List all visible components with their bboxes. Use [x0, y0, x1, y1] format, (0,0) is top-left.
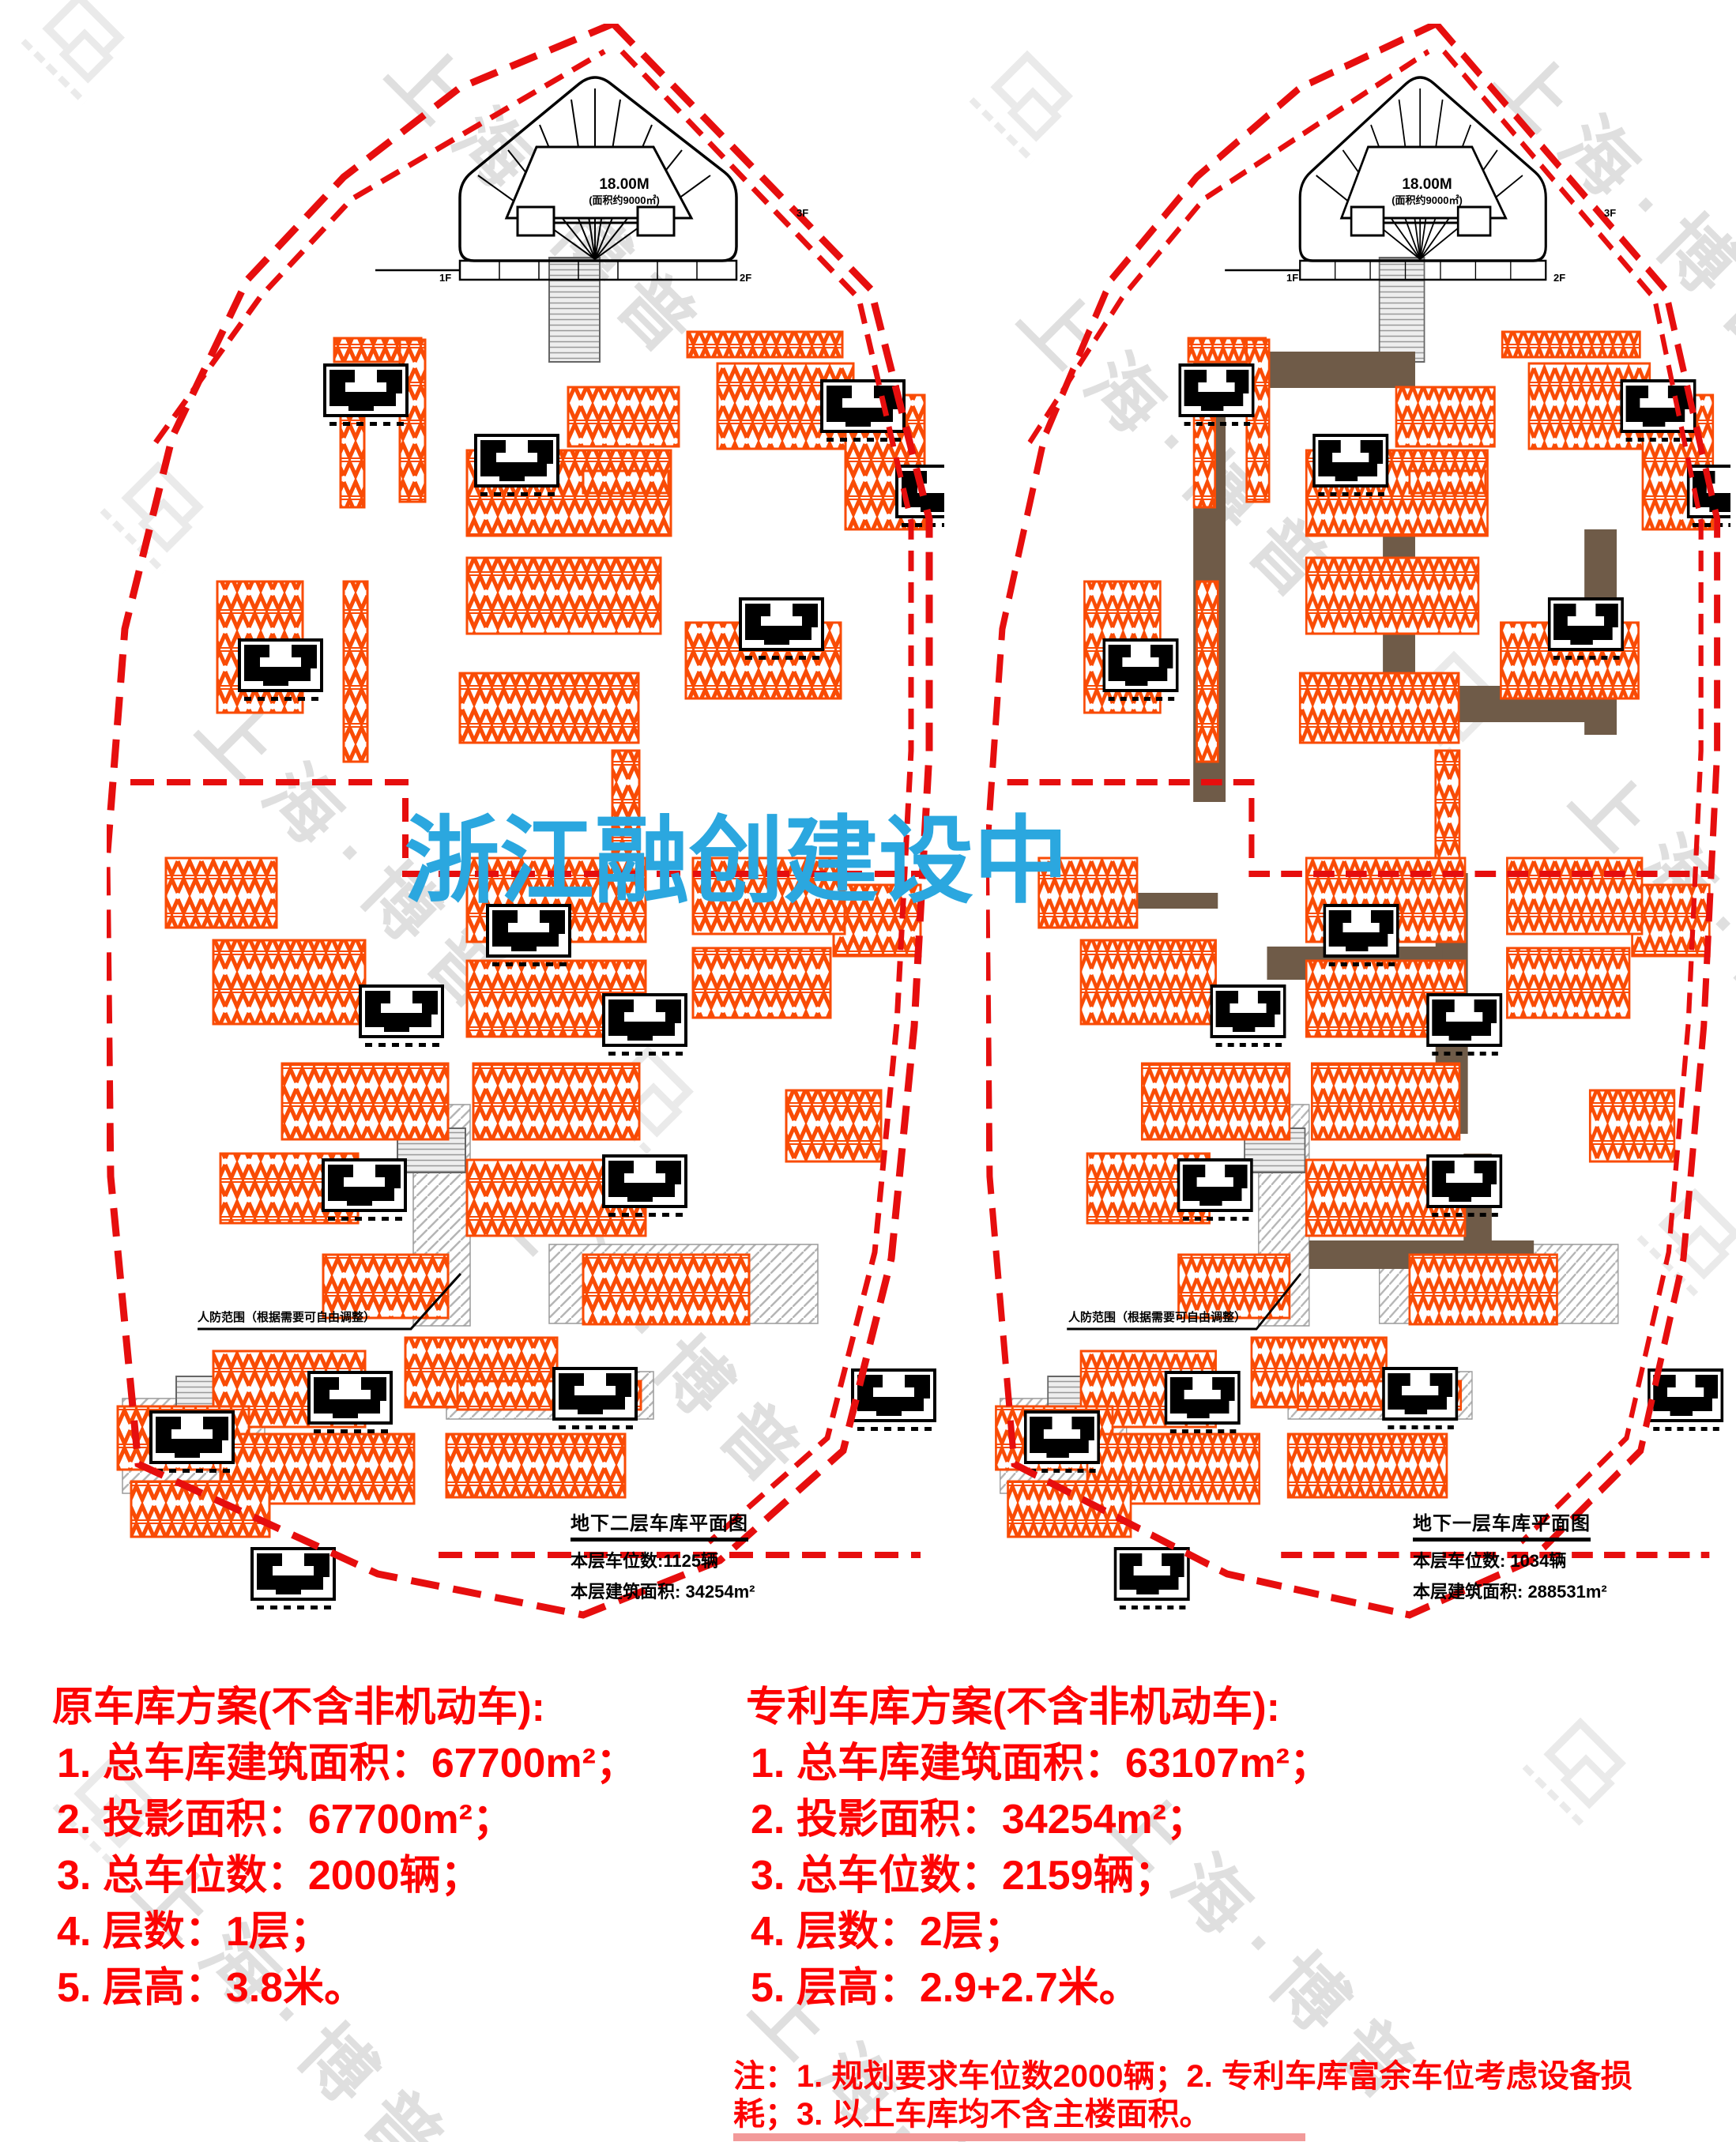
tower-label-right: 18.00M (面积约9000㎡) — [1356, 175, 1498, 207]
right-plan-drawing — [986, 24, 1730, 1663]
building-footprint — [1178, 1160, 1251, 1221]
floor-label-3f-right: 3F — [1604, 207, 1616, 219]
parking-block — [213, 940, 365, 1024]
overlay-title: 浙江融创建设中 — [405, 784, 1068, 921]
footnote-line2: 耗；3. 以上车库均不含主楼面积。 — [733, 2095, 1632, 2133]
parking-block — [1306, 558, 1478, 634]
building-footprint — [853, 1370, 935, 1431]
floor-label-2f-right: 2F — [1553, 272, 1565, 284]
parking-block — [568, 387, 679, 446]
parking-block — [1197, 582, 1218, 762]
building-footprint — [1649, 1370, 1722, 1431]
scheme-original: 原车库方案(不含非机动车): 1. 总车库建筑面积：67700m²； 2. 投影… — [52, 1680, 637, 2016]
building-footprint — [1116, 1549, 1188, 1609]
caption-title: 地下二层车库平面图 — [571, 1508, 748, 1542]
parking-block — [1632, 885, 1710, 956]
tower-area-label: (面积约9000㎡) — [553, 194, 695, 207]
caption-title: 地下一层车库平面图 — [1413, 1508, 1591, 1542]
parking-block — [1142, 1063, 1290, 1139]
parking-block — [1502, 332, 1640, 357]
building-footprint — [309, 1372, 391, 1433]
building-footprint — [554, 1368, 636, 1429]
building-footprint — [1428, 1156, 1501, 1217]
scheme-patent: 专利车库方案(不含非机动车): 1. 总车库建筑面积：63107m²； 2. 投… — [746, 1680, 1331, 2016]
civil-defense-annotation-right: 人防范围（根据需要可自由调整） — [1068, 1308, 1246, 1325]
building-footprint — [1211, 986, 1284, 1047]
building-footprint — [1180, 365, 1252, 426]
building-footprint — [325, 365, 407, 426]
parking-block — [1396, 387, 1494, 446]
scheme-item: 2. 投影面积：34254m²； — [746, 1792, 1331, 1848]
parking-block — [473, 1063, 639, 1139]
building-footprint — [1026, 1412, 1098, 1473]
footnote: 注：1. 规划要求车位数2000辆；2. 专利车库富余车位考虑设备损 耗；3. … — [733, 2057, 1632, 2133]
parking-block — [693, 948, 830, 1018]
scheme-item: 5. 层高：3.8米。 — [52, 1960, 637, 2016]
ramp — [549, 258, 600, 362]
parking-block — [460, 673, 638, 743]
parking-block — [1507, 858, 1642, 934]
parking-block — [282, 1063, 448, 1139]
parking-block — [467, 558, 661, 634]
scheme-heading: 原车库方案(不含非机动车): — [52, 1680, 637, 1736]
parking-block — [1507, 948, 1629, 1018]
building-footprint — [1428, 995, 1501, 1056]
caption-right: 地下一层车库平面图 本层车位数: 1034辆 本层建筑面积: 288531m² — [1413, 1508, 1607, 1603]
parking-block — [1410, 471, 1486, 493]
building-footprint — [1166, 1372, 1239, 1433]
building-footprint — [252, 1549, 334, 1609]
scheme-item: 4. 层数：1层； — [52, 1904, 637, 1960]
building-footprint — [476, 435, 558, 496]
civil-defense-annotation-left: 人防范围（根据需要可自由调整） — [198, 1308, 375, 1325]
page: 上海·博普上海·博普上海·博普上海·博普上海·博普上海·博普上海·博普上海·博普… — [0, 0, 1736, 2142]
caption-spaces: 本层车位数: 1034辆 — [1413, 1547, 1607, 1572]
building-footprint — [151, 1412, 233, 1473]
parking-block — [1288, 1434, 1447, 1497]
scheme-item: 5. 层高：2.9+2.7米。 — [746, 1960, 1331, 2016]
parking-block — [1312, 1063, 1459, 1139]
parking-block — [1410, 1255, 1557, 1324]
floor-label-1f-right: 1F — [1286, 272, 1298, 284]
caption-area: 本层建筑面积: 34254m² — [571, 1578, 755, 1603]
parking-block — [583, 1255, 749, 1324]
building-footprint — [1550, 599, 1622, 660]
building-footprint — [604, 1156, 686, 1217]
building-footprint — [360, 986, 442, 1047]
scheme-item: 1. 总车库建筑面积：63107m²； — [746, 1736, 1331, 1792]
ramp — [1380, 258, 1425, 362]
scheme-item: 3. 总车位数：2000辆； — [52, 1848, 637, 1904]
floor-label-3f-left: 3F — [796, 207, 808, 219]
tower-height-label: 18.00M — [553, 175, 695, 194]
parking-block — [687, 332, 842, 357]
parking-block — [446, 1434, 625, 1497]
footnote-line1: 注：1. 规划要求车位数2000辆；2. 专利车库富余车位考虑设备损 — [733, 2057, 1632, 2095]
building-footprint — [323, 1160, 405, 1221]
building-footprint — [239, 640, 322, 701]
parking-block — [1300, 673, 1459, 743]
scheme-item: 4. 层数：2层； — [746, 1904, 1331, 1960]
tower-height-label: 18.00M — [1356, 175, 1498, 194]
caption-spaces: 本层车位数:1125辆 — [571, 1547, 755, 1572]
caption-area: 本层建筑面积: 288531m² — [1413, 1578, 1607, 1603]
parking-block — [1590, 1090, 1674, 1161]
parking-block — [786, 1090, 881, 1161]
building-footprint — [740, 599, 823, 660]
floor-label-1f-left: 1F — [439, 272, 451, 284]
parking-block — [583, 471, 668, 493]
caption-left: 地下二层车库平面图 本层车位数:1125辆 本层建筑面积: 34254m² — [571, 1508, 755, 1603]
scheme-item: 2. 投影面积：67700m²； — [52, 1792, 637, 1848]
scheme-heading: 专利车库方案(不含非机动车): — [746, 1680, 1331, 1736]
building-footprint — [1384, 1368, 1456, 1429]
watermark-logo-icon — [1513, 1711, 1648, 1845]
tower-area-label: (面积约9000㎡) — [1356, 194, 1498, 207]
parking-block — [344, 582, 367, 762]
scheme-item: 1. 总车库建筑面积：67700m²； — [52, 1736, 637, 1792]
floor-label-2f-left: 2F — [740, 272, 751, 284]
parking-block — [166, 858, 277, 928]
building-footprint — [1324, 905, 1397, 966]
footnote-underline — [733, 2133, 1305, 2141]
building-footprint — [1314, 435, 1387, 496]
scheme-item: 3. 总车位数：2159辆； — [746, 1848, 1331, 1904]
tower-label-left: 18.00M (面积约9000㎡) — [553, 175, 695, 207]
building-footprint — [1104, 640, 1177, 701]
building-footprint — [604, 995, 686, 1056]
parking-block — [1081, 940, 1216, 1024]
